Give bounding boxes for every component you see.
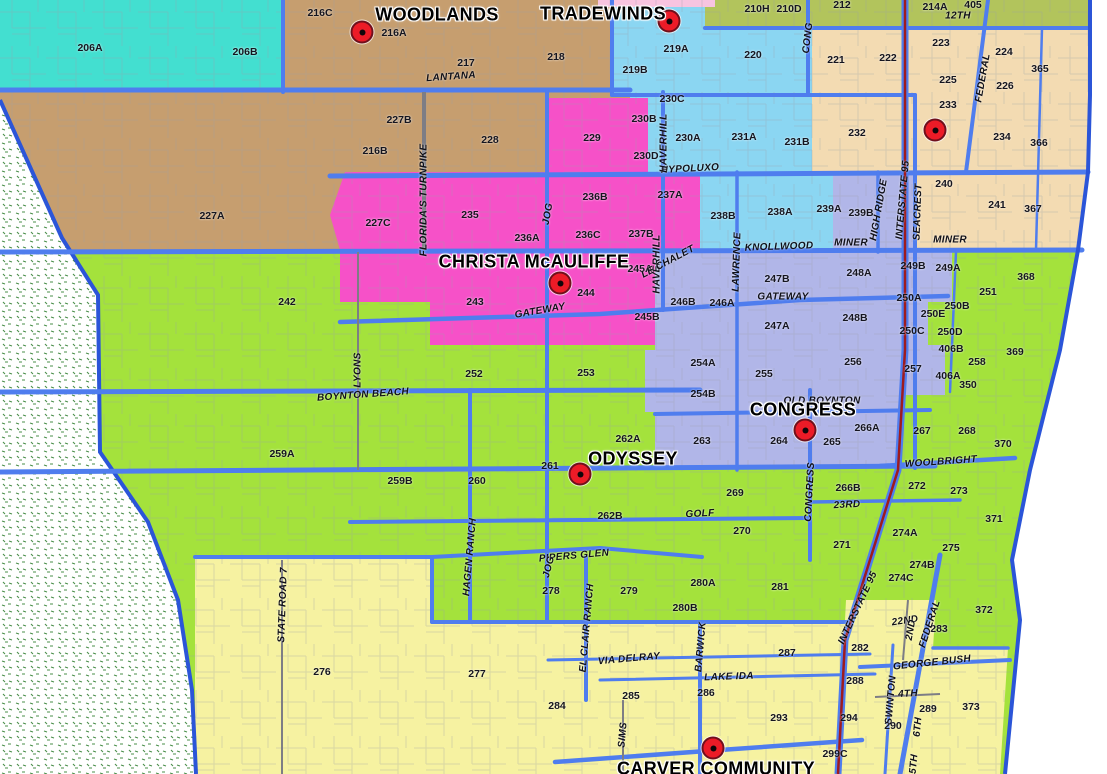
school-label: WOODLANDS — [375, 5, 499, 26]
zone-label-243: 243 — [466, 296, 484, 308]
zone-label-241: 241 — [988, 199, 1006, 211]
zone-label-246B: 246B — [670, 296, 695, 308]
zone-label-214A: 214A — [922, 1, 947, 13]
zone-label-282: 282 — [851, 642, 869, 654]
zone-label-251: 251 — [979, 286, 997, 298]
zone-label-247A: 247A — [764, 320, 789, 332]
zone-label-219A: 219A — [663, 43, 688, 55]
road-label: GATEWAY — [514, 301, 566, 321]
road-label: HAGEN RANCH — [461, 518, 479, 597]
road-label: INTERSTATE 95 — [894, 160, 912, 240]
road-label: LANTANA — [426, 70, 476, 84]
zone-label-228: 228 — [481, 134, 499, 146]
zone-label-242: 242 — [278, 296, 296, 308]
zone-label-227B: 227B — [386, 114, 411, 126]
road-label: EL CLAIR RANCH — [578, 583, 597, 673]
zone-label-233: 233 — [939, 99, 957, 111]
road-label: FLORIDA'S TURNPIKE — [419, 144, 430, 257]
zone-label-216C: 216C — [307, 7, 332, 19]
road-label: 2ND — [904, 619, 918, 641]
zone-label-218: 218 — [547, 51, 565, 63]
zone-label-284: 284 — [548, 700, 566, 712]
zone-label-246A: 246A — [709, 297, 734, 309]
road-label: MINER — [933, 235, 967, 246]
zone-label-206A: 206A — [77, 42, 102, 54]
zone-label-268: 268 — [958, 425, 976, 437]
zone-label-249B: 249B — [900, 260, 925, 272]
zone-label-210D: 210D — [776, 3, 801, 15]
zone-label-250E: 250E — [921, 308, 946, 320]
road-label: GOLF — [685, 508, 715, 521]
road-label: KNOLLWOOD — [744, 240, 813, 253]
zone-label-259B: 259B — [387, 475, 412, 487]
zone-label-271: 271 — [833, 539, 851, 551]
zone-label-250C: 250C — [899, 325, 924, 337]
road-label: JOG — [541, 202, 556, 226]
zone-label-219B: 219B — [622, 64, 647, 76]
zone-label-232: 232 — [848, 127, 866, 139]
zone-label-285: 285 — [622, 690, 640, 702]
zone-label-244: 244 — [577, 287, 595, 299]
road-label: BARWICK — [693, 621, 708, 672]
zone-label-236A: 236A — [514, 232, 539, 244]
zone-label-373: 373 — [962, 701, 980, 713]
zone-label-266A: 266A — [854, 422, 879, 434]
zone-label-259A: 259A — [269, 448, 294, 460]
zone-label-238B: 238B — [710, 210, 735, 222]
road-label: GEORGE BUSH — [892, 653, 971, 672]
zone-label-263: 263 — [693, 435, 711, 447]
school-label: TRADEWINDS — [540, 4, 666, 25]
zone-label-225: 225 — [939, 74, 957, 86]
road-label: HAVERHILL — [659, 113, 670, 172]
zone-label-265: 265 — [823, 436, 841, 448]
road-label: LYONS — [353, 352, 364, 387]
zone-label-275: 275 — [942, 542, 960, 554]
zone-label-280A: 280A — [690, 577, 715, 589]
zone-label-350: 350 — [959, 379, 977, 391]
zone-label-254B: 254B — [690, 388, 715, 400]
zone-label-272: 272 — [908, 480, 926, 492]
zone-label-274C: 274C — [888, 572, 913, 584]
road-label: CONGRESS — [803, 462, 817, 522]
zone-label-278: 278 — [542, 585, 560, 597]
zone-label-293: 293 — [770, 712, 788, 724]
zone-label-220: 220 — [744, 49, 762, 61]
zone-label-273: 273 — [950, 485, 968, 497]
zone-label-226: 226 — [996, 80, 1014, 92]
road-label: SEACREST — [912, 183, 925, 240]
road-label: WOOLBRIGHT — [904, 454, 977, 470]
zone-label-235: 235 — [461, 209, 479, 221]
zone-label-281: 281 — [771, 581, 789, 593]
road-label: LE CHALET — [639, 243, 696, 280]
zone-label-227A: 227A — [199, 210, 224, 222]
road-label: CONG — [801, 22, 816, 54]
zone-label-261: 261 — [541, 460, 559, 472]
zone-label-254A: 254A — [690, 357, 715, 369]
road-label: LAKE IDA — [704, 671, 754, 684]
zone-label-274B: 274B — [909, 559, 934, 571]
zone-label-289: 289 — [919, 703, 937, 715]
road-label: FEDERAL — [973, 53, 992, 103]
road-label: STATE ROAD 7 — [276, 567, 290, 643]
school-label: ODYSSEY — [588, 449, 678, 470]
school-marker[interactable] — [794, 419, 817, 442]
zone-label-231B: 231B — [784, 136, 809, 148]
school-label: CHRISTA McAULIFFE — [439, 252, 630, 273]
zone-label-210H: 210H — [744, 3, 769, 15]
zone-label-258: 258 — [968, 356, 986, 368]
zone-label-248B: 248B — [842, 312, 867, 324]
zone-label-368: 368 — [1017, 271, 1035, 283]
zone-label-253: 253 — [577, 367, 595, 379]
zone-label-221: 221 — [827, 54, 845, 66]
zone-label-406B: 406B — [938, 343, 963, 355]
school-marker[interactable] — [702, 737, 725, 760]
zone-label-286: 286 — [697, 687, 715, 699]
zone-label-280B: 280B — [672, 602, 697, 614]
zone-label-230C: 230C — [659, 93, 684, 105]
zone-label-206B: 206B — [232, 46, 257, 58]
zone-label-406A: 406A — [935, 370, 960, 382]
zone-label-250A: 250A — [896, 292, 921, 304]
school-marker[interactable] — [549, 272, 572, 295]
zone-label-239A: 239A — [816, 203, 841, 215]
zone-label-224: 224 — [995, 46, 1013, 58]
zone-label-276: 276 — [313, 666, 331, 678]
road-label: 12TH — [945, 11, 971, 22]
zone-label-240: 240 — [935, 178, 953, 190]
road-label: 23RD — [833, 499, 860, 511]
road-label: MINER — [834, 238, 868, 249]
zone-label-256: 256 — [844, 356, 862, 368]
zone-label-372: 372 — [975, 604, 993, 616]
zone-label-262A: 262A — [615, 433, 640, 445]
zone-label-299C: 299C — [822, 748, 847, 760]
zone-label-216B: 216B — [362, 145, 387, 157]
zone-label-227C: 227C — [365, 217, 390, 229]
school-label: CONGRESS — [750, 400, 856, 421]
zone-label-237A: 237A — [657, 189, 682, 201]
zone-label-366: 366 — [1030, 137, 1048, 149]
zone-label-288: 288 — [846, 675, 864, 687]
road-label: SIMS — [616, 722, 629, 749]
road-label: VIA DELRAY — [597, 651, 660, 667]
zone-label-269: 269 — [726, 487, 744, 499]
school-label: CARVER COMMUNITY — [617, 759, 815, 774]
zone-label-250B: 250B — [944, 300, 969, 312]
zone-label-255: 255 — [755, 368, 773, 380]
zone-label-371: 371 — [985, 513, 1003, 525]
zone-label-230B: 230B — [631, 113, 656, 125]
zone-label-247B: 247B — [764, 273, 789, 285]
road-label: 4TH — [898, 688, 918, 700]
zone-label-252: 252 — [465, 368, 483, 380]
zone-label-245B: 245B — [634, 311, 659, 323]
zone-label-369: 369 — [1006, 346, 1024, 358]
road-label: 6TH — [912, 717, 925, 738]
road-label: BOYNTON BEACH — [317, 386, 410, 403]
school-marker[interactable] — [351, 21, 374, 44]
zone-label-266B: 266B — [835, 482, 860, 494]
zone-label-267: 267 — [913, 425, 931, 437]
zone-label-274A: 274A — [892, 527, 917, 539]
zone-label-262B: 262B — [597, 510, 622, 522]
zone-label-230D: 230D — [633, 150, 658, 162]
zone-label-260: 260 — [468, 475, 486, 487]
zone-label-231A: 231A — [731, 131, 756, 143]
zone-label-222: 222 — [879, 52, 897, 64]
zone-label-248A: 248A — [846, 267, 871, 279]
zone-label-264: 264 — [770, 435, 788, 447]
zone-label-237B: 237B — [628, 228, 653, 240]
zone-label-277: 277 — [468, 668, 486, 680]
zone-label-238A: 238A — [767, 206, 792, 218]
school-zone-map: 206A206B216C216A217218219B219A220210H210… — [0, 0, 1107, 774]
zone-label-249A: 249A — [935, 262, 960, 274]
zone-label-223: 223 — [932, 37, 950, 49]
zone-label-257: 257 — [904, 363, 922, 375]
zone-label-367: 367 — [1024, 203, 1042, 215]
road-label: LAWRENCE — [730, 232, 743, 292]
zone-label-287: 287 — [778, 647, 796, 659]
zone-label-236B: 236B — [582, 191, 607, 203]
zone-label-212: 212 — [833, 0, 851, 11]
zone-label-294: 294 — [840, 712, 858, 724]
zone-label-365: 365 — [1031, 63, 1049, 75]
road-label: GATEWAY — [757, 292, 808, 303]
zone-label-239B: 239B — [848, 207, 873, 219]
road-label: INTERSTATE 95 — [836, 570, 879, 646]
map-labels-layer: 206A206B216C216A217218219B219A220210H210… — [0, 0, 1107, 774]
zone-label-217: 217 — [457, 57, 475, 69]
school-marker[interactable] — [924, 119, 947, 142]
zone-label-236C: 236C — [575, 229, 600, 241]
zone-label-279: 279 — [620, 585, 638, 597]
road-label: SWINTON — [883, 675, 898, 725]
zone-label-370: 370 — [994, 438, 1012, 450]
zone-label-234: 234 — [993, 131, 1011, 143]
zone-label-250D: 250D — [937, 326, 962, 338]
zone-label-270: 270 — [733, 525, 751, 537]
zone-label-229: 229 — [583, 132, 601, 144]
zone-label-405: 405 — [964, 0, 982, 11]
zone-label-216A: 216A — [381, 27, 406, 39]
zone-label-230A: 230A — [675, 132, 700, 144]
road-label: 5TH — [908, 754, 921, 774]
